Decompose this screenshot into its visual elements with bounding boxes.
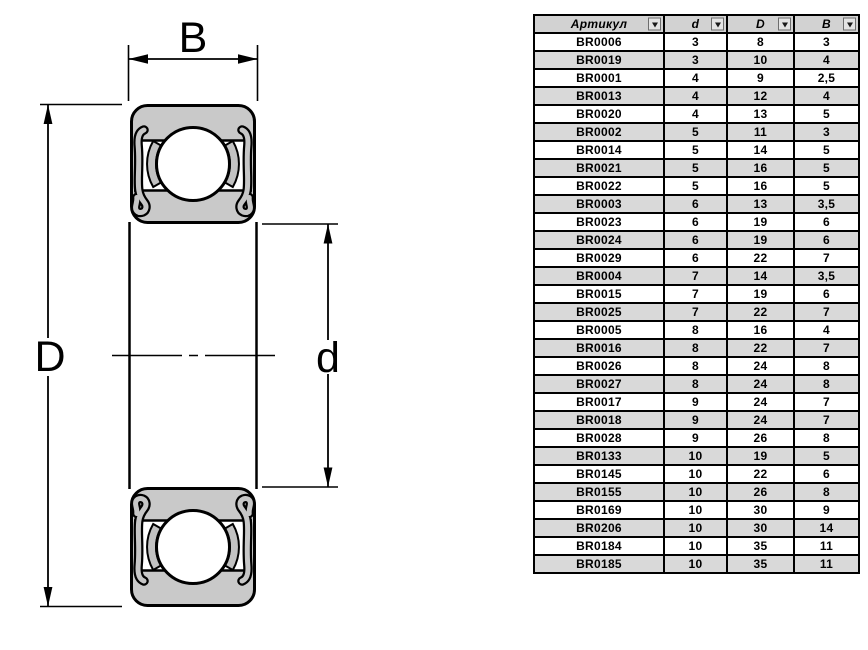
cell-D[interactable]: 10: [727, 51, 794, 69]
cell-article[interactable]: BR0017: [534, 393, 664, 411]
cell-article[interactable]: BR0005: [534, 321, 664, 339]
cell-article[interactable]: BR0025: [534, 303, 664, 321]
filter-button-article[interactable]: [648, 18, 661, 31]
cell-B[interactable]: 7: [794, 411, 859, 429]
cell-article[interactable]: BR0015: [534, 285, 664, 303]
cell-D[interactable]: 13: [727, 195, 794, 213]
cell-d[interactable]: 8: [664, 375, 727, 393]
cell-B[interactable]: 4: [794, 87, 859, 105]
table-row[interactable]: BR0206103014: [534, 519, 859, 537]
cell-d[interactable]: 10: [664, 483, 727, 501]
cell-article[interactable]: BR0021: [534, 159, 664, 177]
filter-dropdown-icon: [652, 22, 658, 27]
table-row[interactable]: BR00058164: [534, 321, 859, 339]
cell-D[interactable]: 24: [727, 375, 794, 393]
cell-article[interactable]: BR0169: [534, 501, 664, 519]
table-row[interactable]: BR00189247: [534, 411, 859, 429]
table-row[interactable]: BR00289268: [534, 429, 859, 447]
cell-B[interactable]: 3,5: [794, 267, 859, 285]
table-row[interactable]: BR00145145: [534, 141, 859, 159]
cell-B[interactable]: 7: [794, 249, 859, 267]
dimension-d-label: d: [316, 334, 340, 382]
cell-B[interactable]: 11: [794, 555, 859, 573]
table-row[interactable]: BR00268248: [534, 357, 859, 375]
cell-article[interactable]: BR0022: [534, 177, 664, 195]
table-row[interactable]: BR0184103511: [534, 537, 859, 555]
cell-D[interactable]: 24: [727, 411, 794, 429]
cell-D[interactable]: 22: [727, 303, 794, 321]
cell-article[interactable]: BR0028: [534, 429, 664, 447]
cell-d[interactable]: 8: [664, 321, 727, 339]
cell-D[interactable]: 14: [727, 267, 794, 285]
cell-d[interactable]: 3: [664, 51, 727, 69]
cell-D[interactable]: 8: [727, 33, 794, 51]
table-row[interactable]: BR00257227: [534, 303, 859, 321]
column-header-article-label: Артикул: [571, 17, 627, 31]
table-row[interactable]: BR016910309: [534, 501, 859, 519]
column-header-d-label: d: [692, 17, 700, 31]
cell-d[interactable]: 10: [664, 501, 727, 519]
cell-d[interactable]: 6: [664, 213, 727, 231]
cell-d[interactable]: 6: [664, 249, 727, 267]
dimension-D-label: D: [34, 333, 65, 381]
cell-D[interactable]: 22: [727, 249, 794, 267]
cell-d[interactable]: 4: [664, 105, 727, 123]
column-header-D[interactable]: D: [727, 15, 794, 33]
table-row[interactable]: BR015510268: [534, 483, 859, 501]
filter-button-d[interactable]: [711, 18, 724, 31]
cell-B[interactable]: 4: [794, 321, 859, 339]
cell-d[interactable]: 9: [664, 411, 727, 429]
cell-D[interactable]: 26: [727, 429, 794, 447]
cell-d[interactable]: 7: [664, 285, 727, 303]
cell-D[interactable]: 16: [727, 321, 794, 339]
cell-d[interactable]: 10: [664, 555, 727, 573]
cell-D[interactable]: 35: [727, 555, 794, 573]
cell-d[interactable]: 10: [664, 519, 727, 537]
filter-button-D[interactable]: [778, 18, 791, 31]
cell-B[interactable]: 11: [794, 537, 859, 555]
table-body: BR0006383BR00193104BR0001492,5BR00134124…: [534, 33, 859, 573]
table-row[interactable]: BR00025113: [534, 123, 859, 141]
cell-d[interactable]: 3: [664, 33, 727, 51]
dimension-B-label: B: [179, 14, 208, 62]
table-row[interactable]: BR00036133,5: [534, 195, 859, 213]
cell-article[interactable]: BR0020: [534, 105, 664, 123]
table-row[interactable]: BR0185103511: [534, 555, 859, 573]
cell-B[interactable]: 5: [794, 447, 859, 465]
cell-D[interactable]: 9: [727, 69, 794, 87]
table-row[interactable]: BR00246196: [534, 231, 859, 249]
cell-article[interactable]: BR0016: [534, 339, 664, 357]
table-row[interactable]: BR014510226: [534, 465, 859, 483]
bearing-diagram: B D d: [0, 0, 520, 650]
cell-d[interactable]: 4: [664, 69, 727, 87]
filter-dropdown-icon: [847, 22, 853, 27]
cell-D[interactable]: 16: [727, 177, 794, 195]
cell-d[interactable]: 5: [664, 123, 727, 141]
cell-D[interactable]: 26: [727, 483, 794, 501]
column-header-B[interactable]: B: [794, 15, 859, 33]
cell-B[interactable]: 7: [794, 339, 859, 357]
cell-article[interactable]: BR0002: [534, 123, 664, 141]
column-header-article[interactable]: Артикул: [534, 15, 664, 33]
cell-article[interactable]: BR0001: [534, 69, 664, 87]
cell-D[interactable]: 19: [727, 231, 794, 249]
header-row: Артикул d D B: [534, 15, 859, 33]
cell-B[interactable]: 5: [794, 177, 859, 195]
table-row[interactable]: BR00225165: [534, 177, 859, 195]
table-row[interactable]: BR00278248: [534, 375, 859, 393]
cell-article[interactable]: BR0019: [534, 51, 664, 69]
table-row[interactable]: BR00134124: [534, 87, 859, 105]
cell-B[interactable]: 7: [794, 393, 859, 411]
table-row[interactable]: BR00157196: [534, 285, 859, 303]
cell-article[interactable]: BR0018: [534, 411, 664, 429]
cell-B[interactable]: 3: [794, 123, 859, 141]
cell-D[interactable]: 19: [727, 213, 794, 231]
cell-D[interactable]: 30: [727, 501, 794, 519]
cell-B[interactable]: 8: [794, 483, 859, 501]
filter-button-B[interactable]: [843, 18, 856, 31]
bearing-bottom-section: [132, 489, 255, 606]
cell-d[interactable]: 6: [664, 231, 727, 249]
cell-B[interactable]: 8: [794, 375, 859, 393]
cell-d[interactable]: 5: [664, 177, 727, 195]
cell-D[interactable]: 19: [727, 447, 794, 465]
cell-B[interactable]: 6: [794, 285, 859, 303]
column-header-B-label: B: [822, 17, 831, 31]
cell-article[interactable]: BR0027: [534, 375, 664, 393]
cell-B[interactable]: 8: [794, 429, 859, 447]
cell-article[interactable]: BR0004: [534, 267, 664, 285]
cell-B[interactable]: 5: [794, 159, 859, 177]
cell-d[interactable]: 9: [664, 393, 727, 411]
cell-d[interactable]: 10: [664, 447, 727, 465]
cell-B[interactable]: 3,5: [794, 195, 859, 213]
cell-D[interactable]: 14: [727, 141, 794, 159]
cell-article[interactable]: BR0029: [534, 249, 664, 267]
cell-article[interactable]: BR0184: [534, 537, 664, 555]
cell-article[interactable]: BR0014: [534, 141, 664, 159]
page: B D d: [0, 0, 868, 650]
cell-D[interactable]: 24: [727, 393, 794, 411]
cell-B[interactable]: 6: [794, 231, 859, 249]
table-row[interactable]: BR013310195: [534, 447, 859, 465]
cell-D[interactable]: 16: [727, 159, 794, 177]
column-header-D-label: D: [756, 17, 765, 31]
cell-d[interactable]: 9: [664, 429, 727, 447]
cell-article[interactable]: BR0023: [534, 213, 664, 231]
cell-D[interactable]: 13: [727, 105, 794, 123]
cell-article[interactable]: BR0206: [534, 519, 664, 537]
cell-article[interactable]: BR0013: [534, 87, 664, 105]
bearing-top-section: [132, 106, 255, 223]
cell-article[interactable]: BR0145: [534, 465, 664, 483]
cell-article[interactable]: BR0026: [534, 357, 664, 375]
cell-B[interactable]: 9: [794, 501, 859, 519]
cell-D[interactable]: 30: [727, 519, 794, 537]
cell-B[interactable]: 3: [794, 33, 859, 51]
cell-d[interactable]: 8: [664, 357, 727, 375]
filter-dropdown-icon: [715, 22, 721, 27]
cell-article[interactable]: BR0185: [534, 555, 664, 573]
cell-D[interactable]: 11: [727, 123, 794, 141]
table-row[interactable]: BR00215165: [534, 159, 859, 177]
column-header-d[interactable]: d: [664, 15, 727, 33]
cell-B[interactable]: 8: [794, 357, 859, 375]
cell-B[interactable]: 5: [794, 105, 859, 123]
cell-D[interactable]: 12: [727, 87, 794, 105]
cell-article[interactable]: BR0133: [534, 447, 664, 465]
table-row[interactable]: BR00204135: [534, 105, 859, 123]
cell-d[interactable]: 6: [664, 195, 727, 213]
cell-B[interactable]: 5: [794, 141, 859, 159]
cell-B[interactable]: 6: [794, 213, 859, 231]
cell-article[interactable]: BR0155: [534, 483, 664, 501]
table-row[interactable]: BR0006383: [534, 33, 859, 51]
table-row[interactable]: BR00296227: [534, 249, 859, 267]
table-row[interactable]: BR0001492,5: [534, 69, 859, 87]
cell-d[interactable]: 10: [664, 537, 727, 555]
table-row[interactable]: BR00168227: [534, 339, 859, 357]
cell-d[interactable]: 10: [664, 465, 727, 483]
cell-d[interactable]: 7: [664, 303, 727, 321]
cell-d[interactable]: 4: [664, 87, 727, 105]
table-row[interactable]: BR00193104: [534, 51, 859, 69]
cell-d[interactable]: 5: [664, 159, 727, 177]
filter-dropdown-icon: [782, 22, 788, 27]
table-row[interactable]: BR00047143,5: [534, 267, 859, 285]
cell-D[interactable]: 24: [727, 357, 794, 375]
cell-B[interactable]: 4: [794, 51, 859, 69]
spec-table-container: Артикул d D B: [533, 14, 860, 574]
cell-d[interactable]: 7: [664, 267, 727, 285]
cell-article[interactable]: BR0006: [534, 33, 664, 51]
cell-B[interactable]: 7: [794, 303, 859, 321]
cell-B[interactable]: 2,5: [794, 69, 859, 87]
cell-d[interactable]: 8: [664, 339, 727, 357]
cell-D[interactable]: 22: [727, 465, 794, 483]
table-row[interactable]: BR00179247: [534, 393, 859, 411]
cell-B[interactable]: 6: [794, 465, 859, 483]
cell-d[interactable]: 5: [664, 141, 727, 159]
cell-D[interactable]: 19: [727, 285, 794, 303]
cell-article[interactable]: BR0024: [534, 231, 664, 249]
cell-D[interactable]: 22: [727, 339, 794, 357]
cell-D[interactable]: 35: [727, 537, 794, 555]
spec-table: Артикул d D B: [533, 14, 860, 574]
cell-article[interactable]: BR0003: [534, 195, 664, 213]
table-row[interactable]: BR00236196: [534, 213, 859, 231]
cell-B[interactable]: 14: [794, 519, 859, 537]
